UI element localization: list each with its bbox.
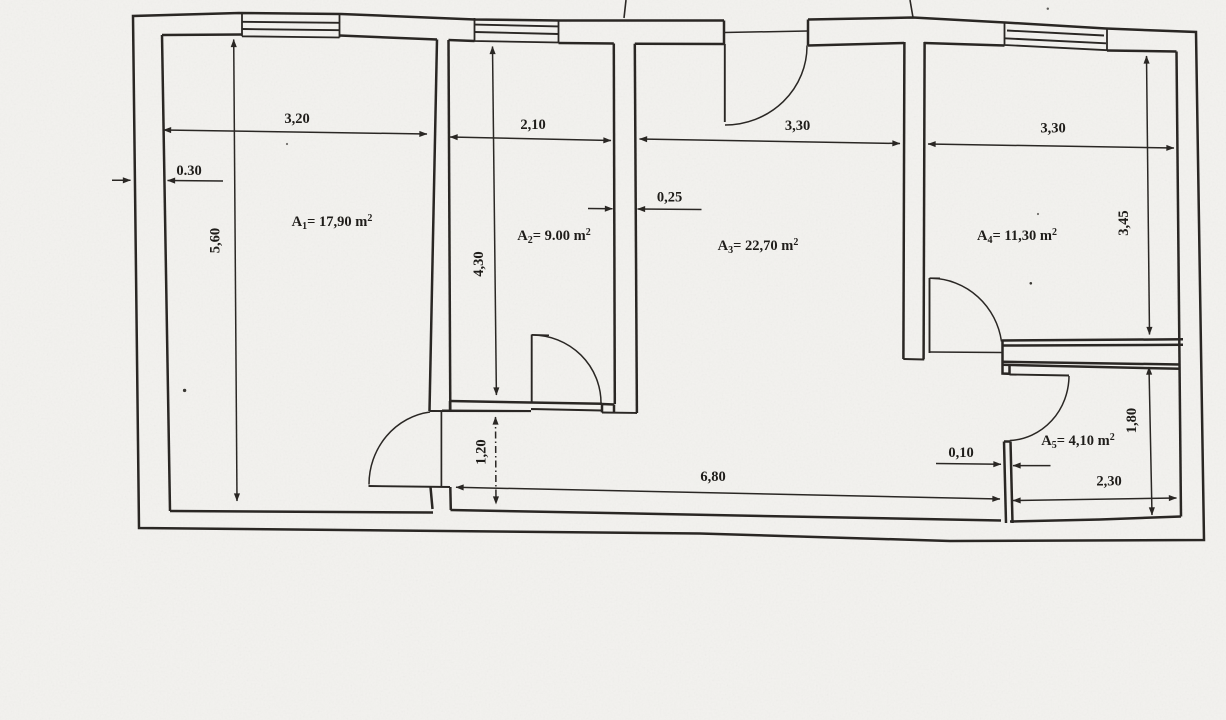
svg-text:5,60: 5,60 — [208, 228, 224, 253]
svg-text:0,10: 0,10 — [948, 445, 973, 461]
svg-text:2,30: 2,30 — [1096, 474, 1121, 490]
svg-text:4,30: 4,30 — [471, 251, 487, 276]
svg-text:1,80: 1,80 — [1124, 408, 1140, 433]
svg-text:3,30: 3,30 — [785, 118, 810, 134]
svg-text:0.30: 0.30 — [176, 163, 201, 179]
svg-text:0,25: 0,25 — [657, 190, 682, 206]
svg-text:2,10: 2,10 — [520, 117, 545, 133]
svg-text:3,20: 3,20 — [284, 111, 309, 127]
svg-text:3,30: 3,30 — [1040, 121, 1065, 137]
svg-text:3,45: 3,45 — [1116, 210, 1132, 235]
svg-text:1,20: 1,20 — [474, 439, 490, 464]
svg-text:6,80: 6,80 — [700, 469, 725, 485]
